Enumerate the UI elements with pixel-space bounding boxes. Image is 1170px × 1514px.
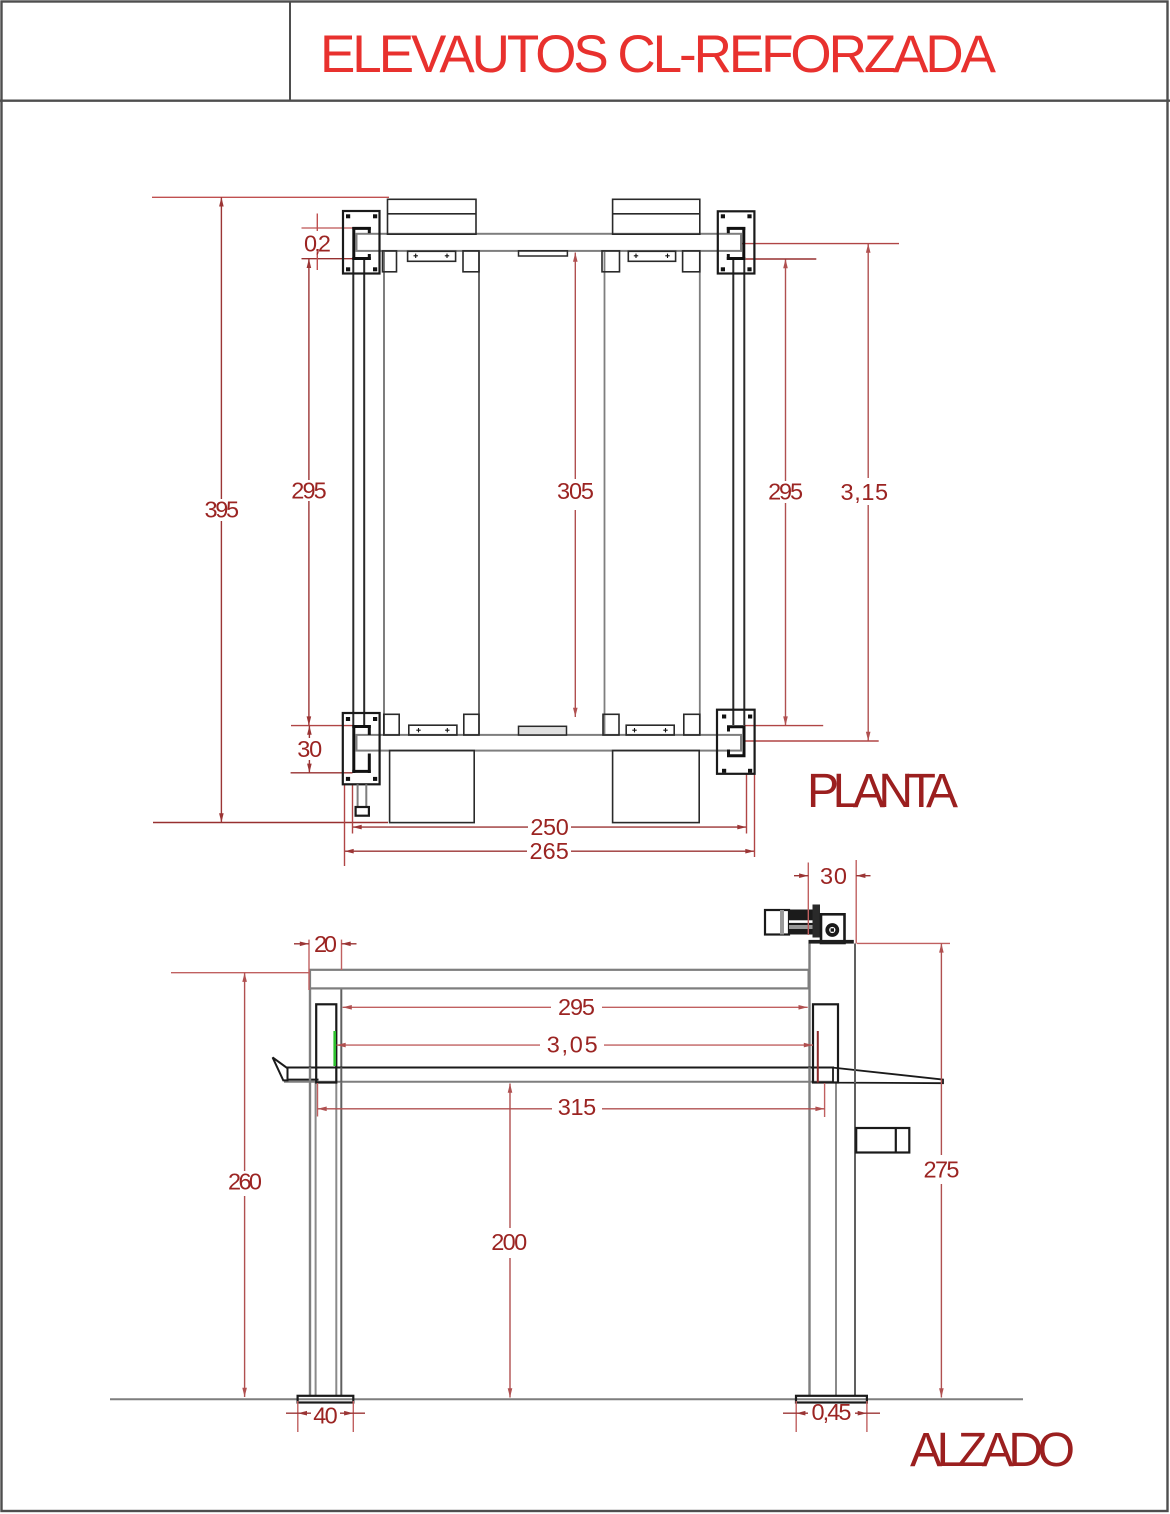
- svg-text:295: 295: [558, 994, 595, 1020]
- svg-text:0,45: 0,45: [812, 1399, 852, 1425]
- svg-text:200: 200: [491, 1229, 527, 1255]
- svg-text:265: 265: [530, 838, 569, 864]
- svg-text:3,15: 3,15: [841, 479, 889, 505]
- svg-text:275: 275: [924, 1157, 960, 1183]
- svg-text:295: 295: [291, 478, 327, 504]
- svg-text:ELEVAUTOS CL-REFORZADA: ELEVAUTOS CL-REFORZADA: [320, 25, 997, 84]
- svg-text:305: 305: [557, 478, 594, 504]
- svg-text:PLANTA: PLANTA: [807, 765, 958, 818]
- svg-text:0,2: 0,2: [304, 231, 331, 257]
- svg-text:315: 315: [558, 1094, 597, 1120]
- svg-text:250: 250: [530, 814, 569, 840]
- svg-text:20: 20: [314, 931, 337, 957]
- svg-text:30: 30: [820, 863, 847, 889]
- svg-text:395: 395: [205, 497, 240, 523]
- svg-text:260: 260: [228, 1169, 262, 1195]
- svg-text:ALZADO: ALZADO: [910, 1424, 1075, 1477]
- svg-text:40: 40: [313, 1403, 338, 1429]
- svg-text:3,05: 3,05: [547, 1032, 598, 1058]
- svg-text:295: 295: [768, 479, 803, 505]
- svg-text:30: 30: [297, 736, 322, 762]
